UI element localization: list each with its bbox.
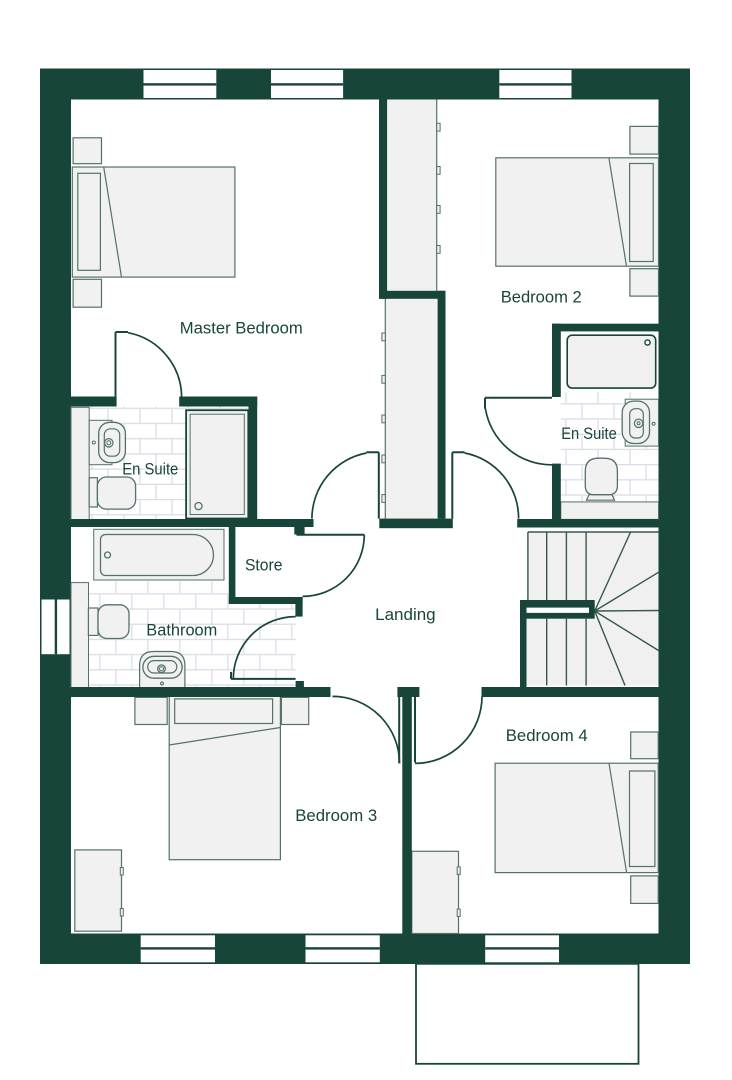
svg-text:Store: Store bbox=[245, 556, 283, 575]
svg-text:En Suite: En Suite bbox=[561, 424, 617, 443]
svg-text:En Suite: En Suite bbox=[122, 460, 178, 479]
svg-text:Bedroom 3: Bedroom 3 bbox=[295, 806, 377, 825]
svg-text:Bedroom 2: Bedroom 2 bbox=[501, 288, 582, 307]
svg-text:Bedroom 4: Bedroom 4 bbox=[506, 726, 588, 745]
svg-text:Bathroom: Bathroom bbox=[146, 620, 217, 639]
svg-text:Master Bedroom: Master Bedroom bbox=[180, 319, 303, 338]
svg-text:Landing: Landing bbox=[375, 605, 436, 624]
